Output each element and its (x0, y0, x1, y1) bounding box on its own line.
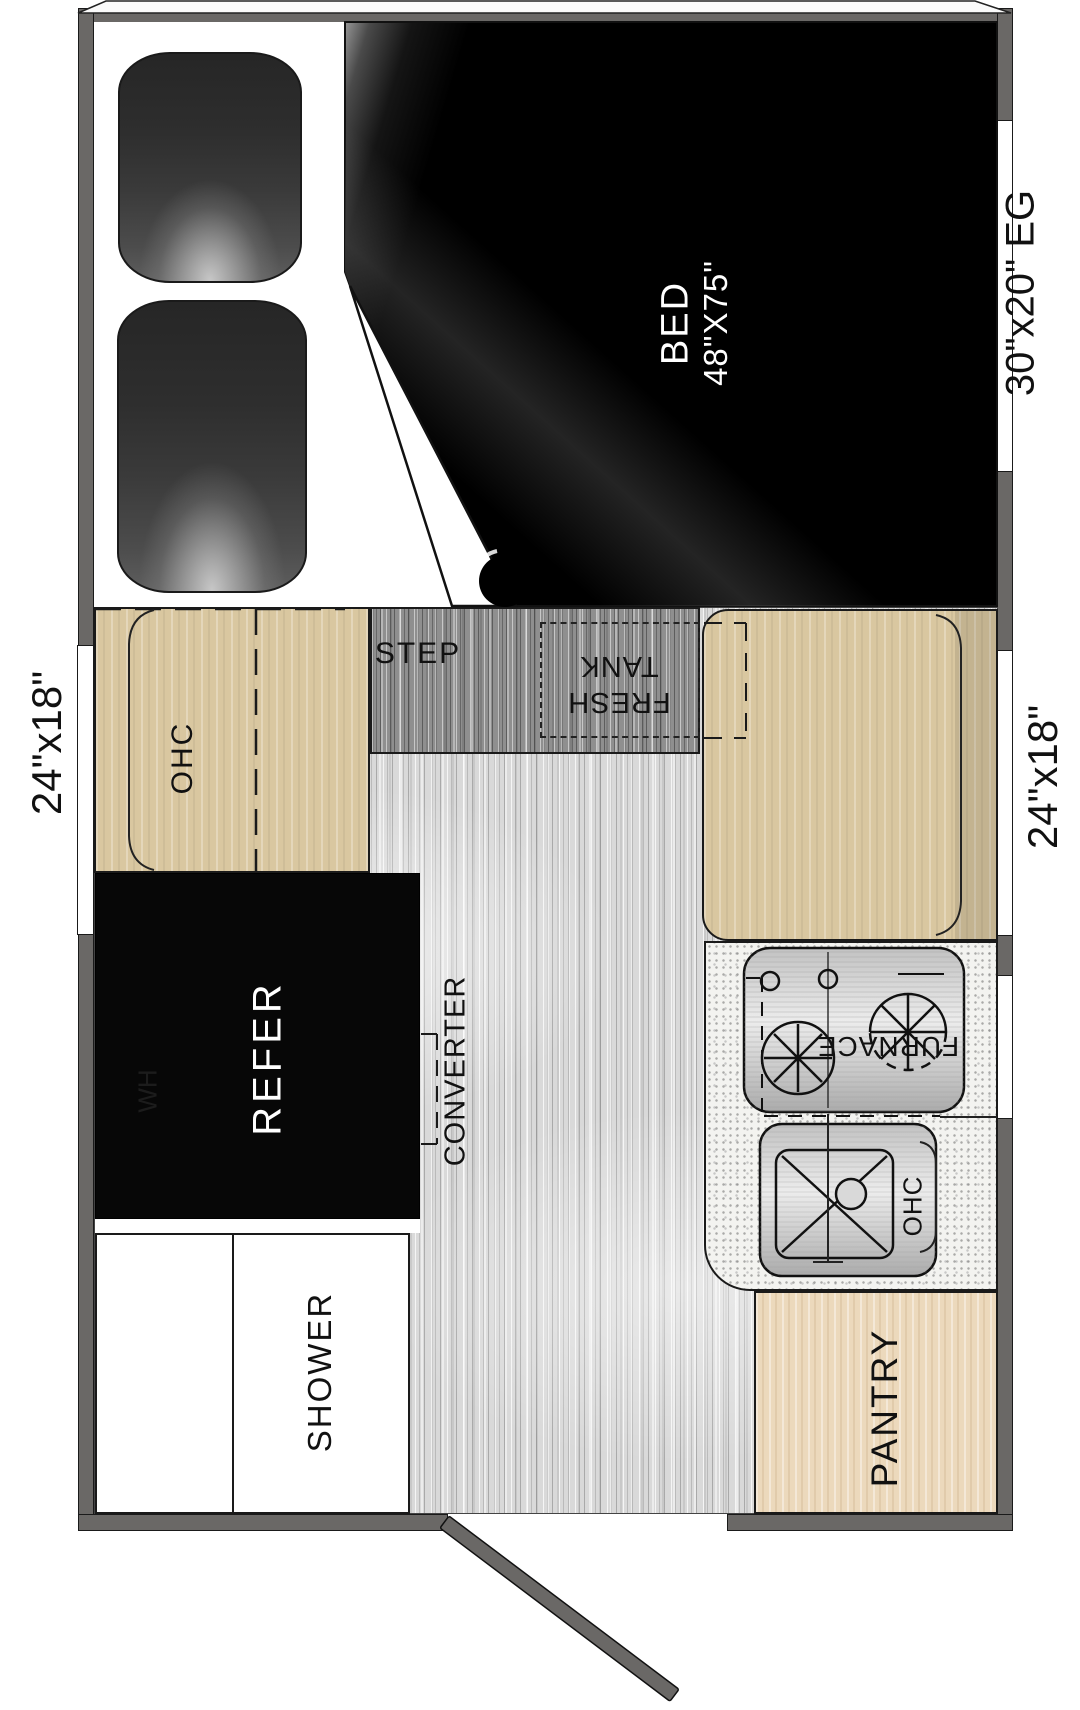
bed-label: BED (655, 281, 698, 365)
ohc-kitchen-label: OHC (898, 1176, 929, 1237)
bed-size-label: 48"X75" (697, 260, 735, 386)
blanket-fold (350, 286, 516, 606)
overhead-cabinet-left (94, 607, 370, 873)
pantry-label: PANTRY (864, 1329, 906, 1488)
blanket-curl (479, 555, 531, 607)
shower-stall (95, 1233, 410, 1514)
window-right-low (996, 975, 1013, 1119)
bench-seat-right (702, 609, 998, 941)
truck-seat-1 (118, 52, 302, 283)
shower-divider (232, 1235, 234, 1512)
entry-door (440, 1516, 679, 1701)
window-left (77, 645, 94, 935)
window-left-dimension: 24"x18" (23, 671, 71, 815)
water-heater-label: WH (133, 1069, 164, 1112)
truck-seat-2 (117, 300, 307, 593)
window-right-dimension: 24"x18" (1019, 705, 1067, 849)
converter-label: CONVERTER (440, 976, 473, 1167)
floorplan-canvas: BED 48"X75" STEP FRESH TANK OHC REFER WH… (0, 0, 1080, 1710)
step-label: STEP (375, 637, 461, 671)
wall-top (78, 8, 1013, 23)
fresh-tank-line1: FRESH (567, 684, 670, 720)
kitchen-counter (704, 941, 998, 1291)
fresh-tank-label: FRESH TANK (567, 648, 670, 720)
shower-label: SHOWER (301, 1292, 339, 1453)
refer-label: REFER (246, 980, 291, 1136)
fresh-tank-line2: TANK (567, 648, 670, 684)
window-right-mid (996, 650, 1013, 936)
furnace-label: FURNACE (817, 1030, 959, 1062)
wall-bottom-right (727, 1514, 1013, 1531)
window-right-front-dimension: 30"x20" EG (999, 190, 1044, 396)
shower-gap (95, 1219, 420, 1233)
ohc-left-label: OHC (166, 722, 200, 795)
wall-bottom-left (78, 1514, 448, 1531)
